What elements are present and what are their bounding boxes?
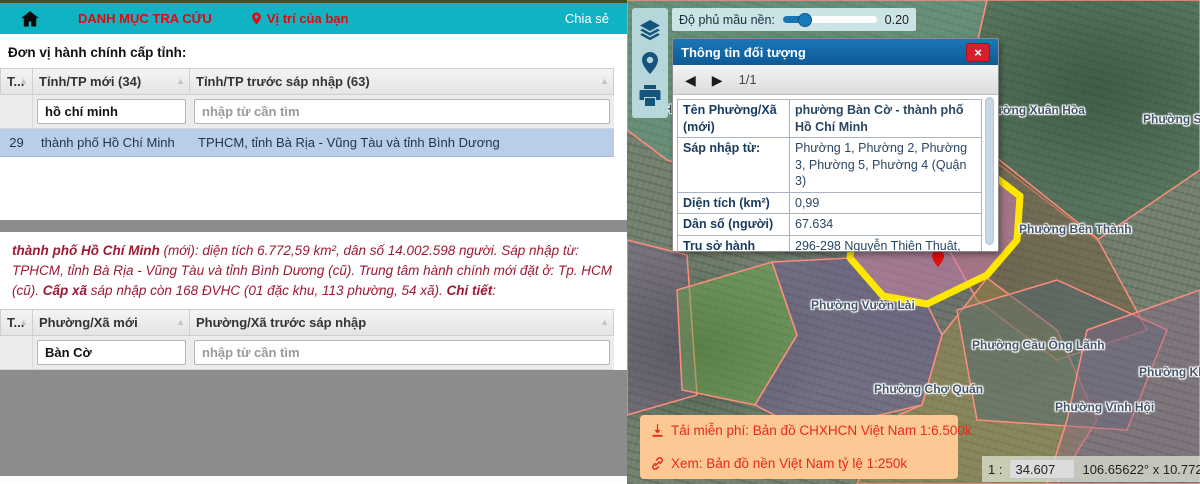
province-row-new: thành phố Hồ Chí Minh	[33, 129, 190, 157]
province-col-order[interactable]: T...▲	[0, 68, 33, 95]
divider	[0, 220, 627, 232]
download-icon	[650, 423, 665, 438]
ward-col-old[interactable]: Phường/Xã trước sáp nhập▲	[190, 309, 614, 336]
next-page-icon[interactable]: ▶	[712, 73, 723, 87]
opacity-control: Độ phủ mầu nền: 0.20	[672, 8, 916, 31]
ward-col-new[interactable]: Phường/Xã mới▲	[33, 309, 190, 336]
locate-pin-icon[interactable]	[638, 51, 662, 75]
feature-attributes-table: Tên Phường/Xã (mới) phường Bàn Cờ - thàn…	[677, 99, 982, 252]
table-row: Diện tích (km²) 0,99	[678, 192, 982, 214]
map-label-vinh-hoi: Phường Vĩnh Hội	[1055, 400, 1154, 414]
popup-title: Thông tin đối tượng	[681, 45, 806, 60]
lookup-panel: DANH MỤC TRA CỨU Vị trí của bạn Chia sẻ …	[0, 0, 627, 484]
download-box: Tải miễn phí: Bản đồ CHXHCN Việt Nam 1:6…	[640, 415, 958, 479]
summary-province-name: thành phố Hồ Chí Minh	[12, 243, 160, 258]
sort-icon: ▲	[19, 317, 28, 327]
panel-background	[0, 370, 627, 476]
popup-body: Tên Phường/Xã (mới) phường Bàn Cờ - thàn…	[673, 95, 998, 252]
nav-item-danh-muc[interactable]: DANH MỤC TRA CỨU	[78, 11, 212, 26]
panel-footer	[0, 476, 627, 483]
province-summary: thành phố Hồ Chí Minh (mới): diện tích 6…	[0, 232, 627, 309]
province-row-old: TPHCM, tỉnh Bà Rịa - Vũng Tàu và tỉnh Bì…	[190, 129, 614, 157]
province-table-empty	[0, 157, 614, 220]
table-row: Dân số (người) 67.634	[678, 214, 982, 236]
ward-filter-spacer	[0, 336, 33, 370]
province-filter-spacer	[0, 95, 33, 129]
opacity-slider[interactable]	[783, 16, 877, 23]
ward-filter-new-input[interactable]	[37, 340, 186, 365]
table-row: Sáp nhập từ: Phường 1, Phường 2, Phường …	[678, 138, 982, 193]
province-row-id: 29	[0, 129, 33, 157]
download-link[interactable]: Tải miễn phí: Bản đồ CHXHCN Việt Nam 1:6…	[650, 423, 948, 438]
map-toolbar	[632, 8, 668, 118]
map-label-ben-thanh: Phường Bến Thành	[1019, 222, 1132, 236]
province-table: T...▲ Tỉnh/TP mới (34)▲ Tỉnh/TP trước sá…	[0, 68, 614, 220]
ward-table: T...▲ Phường/Xã mới▲ Phường/Xã trước sáp…	[0, 309, 614, 370]
popup-titlebar: Thông tin đối tượng ×	[673, 39, 998, 65]
map-label-cho-quan: Phường Chợ Quán	[874, 382, 983, 396]
scale-bar: 1 : 106.65622° x 10.77207	[982, 456, 1200, 482]
link-icon	[650, 456, 665, 471]
province-col-old[interactable]: Tỉnh/TP trước sáp nhập (63)▲	[190, 68, 614, 95]
print-icon[interactable]	[638, 84, 662, 108]
sort-icon: ▲	[600, 76, 609, 86]
sort-icon: ▲	[176, 317, 185, 327]
cursor-coordinates: 106.65622° x 10.77207	[1082, 462, 1200, 477]
province-filter-new-input[interactable]	[37, 99, 186, 124]
opacity-label: Độ phủ mầu nền:	[679, 13, 775, 27]
ward-filter-old-input[interactable]	[194, 340, 610, 365]
province-row-selected[interactable]: 29 thành phố Hồ Chí Minh TPHCM, tỉnh Bà …	[0, 129, 614, 157]
ward-col-order[interactable]: T...▲	[0, 309, 33, 336]
popup-pager: ◀ ▶ 1/1	[673, 65, 998, 95]
table-row: Tên Phường/Xã (mới) phường Bàn Cờ - thàn…	[678, 100, 982, 138]
sort-icon: ▲	[176, 76, 185, 86]
navbar: DANH MỤC TRA CỨU Vị trí của bạn Chia sẻ	[0, 3, 627, 34]
home-icon[interactable]	[20, 9, 40, 29]
location-pin-icon	[250, 11, 263, 26]
popup-scrollbar[interactable]	[985, 97, 994, 245]
section-title: Đơn vị hành chính cấp tỉnh:	[0, 34, 627, 68]
page-count: 1/1	[739, 72, 757, 87]
map-canvas[interactable]: Phường Xuân Hòa Phường Sài Gòn Phường Bế…	[627, 0, 1200, 484]
app-window: DANH MỤC TRA CỨU Vị trí của bạn Chia sẻ …	[0, 0, 1200, 484]
slider-handle[interactable]	[798, 13, 812, 27]
scale-prefix: 1 :	[988, 462, 1002, 477]
sort-icon: ▲	[19, 76, 28, 86]
map-label-khanh-hoi: Phường Khánh Hội	[1139, 365, 1200, 379]
feature-info-popup: Thông tin đối tượng × ◀ ▶ 1/1 Tên Phường…	[672, 38, 999, 252]
map-label-vuon-lai: Phường Vườn Lài	[811, 298, 915, 312]
map-label-cau-ong-lanh: Phường Cầu Ông Lãnh	[972, 338, 1105, 352]
close-icon[interactable]: ×	[966, 43, 990, 62]
province-filter-old-input[interactable]	[194, 99, 610, 124]
opacity-value: 0.20	[885, 13, 909, 27]
layers-icon[interactable]	[638, 18, 662, 42]
nav-item-vi-tri[interactable]: Vị trí của bạn	[250, 11, 349, 26]
nav-vi-tri-label: Vị trí của bạn	[267, 11, 349, 26]
scale-input[interactable]	[1009, 459, 1075, 479]
province-col-new[interactable]: Tỉnh/TP mới (34)▲	[33, 68, 190, 95]
prev-page-icon[interactable]: ◀	[685, 73, 696, 87]
nav-danh-muc-label: DANH MỤC TRA CỨU	[78, 11, 212, 26]
table-row: Trụ sở hành chính (mới) 296-298 Nguyễn T…	[678, 235, 982, 252]
share-button[interactable]: Chia sẻ	[565, 11, 609, 26]
map-label-sai-gon: Phường Sài Gòn	[1143, 112, 1200, 126]
view-link[interactable]: Xem: Bản đồ nền Việt Nam tỷ lệ 1:250k	[650, 456, 948, 471]
sort-icon: ▲	[600, 317, 609, 327]
